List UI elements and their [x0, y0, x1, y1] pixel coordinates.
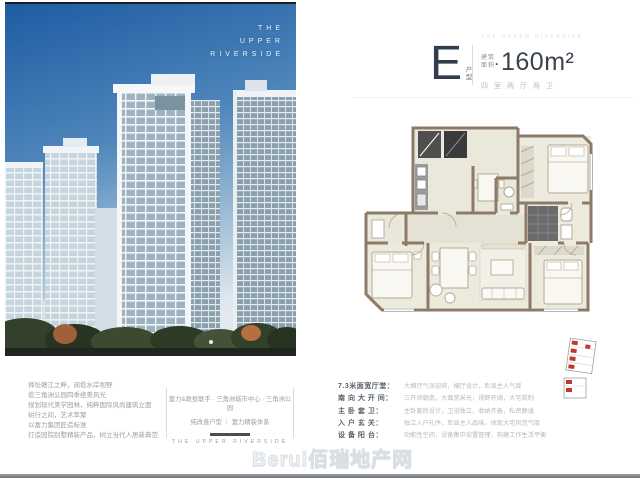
feature-list: 7.3米面宽厅堂： 大横厅气派迎宾，横厅设计，彰显主人气度 南 向 大 开 间：…	[338, 381, 548, 442]
feature-desc: 主卧套房设计，卫浴独立，收纳齐备，私密静谧	[404, 406, 534, 415]
feature-row: 设 备 阳 台： 功能性空间，设备集中安置管理，构建工作生活平衡	[338, 430, 548, 442]
brand-line: UPPER	[210, 35, 284, 48]
area-label: 建筑 面积	[481, 55, 495, 70]
key-plan	[558, 336, 606, 405]
key-plan-drawing	[558, 336, 606, 400]
selling-points-block: 富力&政投联手 · 三角洲城市中心 · 三角洲公园 纯改善户型 ｜ 富力精装体系…	[166, 388, 294, 438]
header-rule	[352, 97, 634, 98]
feature-row: 7.3米面宽厅堂： 大横厅气派迎宾，横厅设计，彰显主人气度	[338, 381, 548, 393]
selling-points-line2: 纯改善户型 ｜ 富力精装体系	[167, 417, 293, 426]
feature-label: 南 向 大 开 间：	[338, 393, 404, 403]
copy-line: 规划现代美学园林，纯粹国际风尚建筑立面	[28, 401, 158, 411]
header-divider	[472, 45, 473, 85]
feature-label: 主 卧 套 卫：	[338, 406, 404, 416]
site-watermark: Berui佰瑞地产网	[252, 443, 413, 472]
area-separator-dot: ·	[495, 57, 499, 71]
brochure-page: THE UPPER RIVERSIDE E 户型 THE UPPER RIVER…	[0, 0, 640, 486]
feature-row: 南 向 大 开 间： 三开间朝南，大面宽采光，视野开阔，大宅规制	[338, 393, 548, 405]
feature-row: 入 户 玄 关： 独立入户礼序，彰显主人品味，体现大宅风范气度	[338, 418, 548, 430]
brand-wordmark-vertical: THE UPPER RIVERSIDE	[210, 22, 284, 61]
feature-label: 设 备 阳 台：	[338, 430, 404, 440]
copy-line: 以富力集团匠造标准	[28, 421, 158, 431]
building-photo: THE UPPER RIVERSIDE	[5, 2, 296, 356]
feature-desc: 功能性空间，设备集中安置管理，构建工作生活平衡	[404, 430, 546, 439]
feature-desc: 独立入户礼序，彰显主人品味，体现大宅风范气度	[404, 418, 540, 427]
mini-brand-text: THE UPPER RIVERSIDE	[481, 34, 584, 40]
copy-line: 打造园院别墅精装产品，树立当代人居新典范	[28, 431, 158, 441]
copy-line: 择址赣江之畔，阅揽水岸视野	[28, 381, 158, 391]
bottom-border-bar	[0, 474, 640, 478]
copy-line: 揽三角洲公园四季绝美风光	[28, 391, 158, 401]
feature-label: 入 户 玄 关：	[338, 418, 404, 428]
unit-type-letter: E	[430, 36, 462, 91]
area-value: 160m²	[501, 48, 574, 77]
selling-points-line1: 富力&政投联手 · 三角洲城市中心 · 三角洲公园	[167, 394, 293, 412]
brand-line: THE	[210, 22, 284, 35]
feature-row: 主 卧 套 卫： 主卧套房设计，卫浴独立，收纳齐备，私密静谧	[338, 406, 548, 418]
unit-type-suffix: 户型	[463, 66, 471, 81]
marketing-copy: 择址赣江之畔，阅揽水岸视野 揽三角洲公园四季绝美风光 规划现代美学园林，纯粹国际…	[28, 381, 158, 442]
copy-line: 树行之间，艺术萃聚	[28, 411, 158, 421]
area-label-top: 建筑	[481, 55, 495, 63]
feature-label: 7.3米面宽厅堂：	[338, 381, 404, 391]
feature-desc: 三开间朝南，大面宽采光，视野开阔，大宅规制	[404, 393, 534, 402]
divider-bar	[210, 433, 250, 436]
layout-summary: 四室两厅两卫	[481, 81, 559, 91]
feature-desc: 大横厅气派迎宾，横厅设计，彰显主人气度	[404, 381, 522, 390]
area-label-bottom: 面积	[481, 63, 495, 71]
brand-line: RIVERSIDE	[210, 48, 284, 61]
